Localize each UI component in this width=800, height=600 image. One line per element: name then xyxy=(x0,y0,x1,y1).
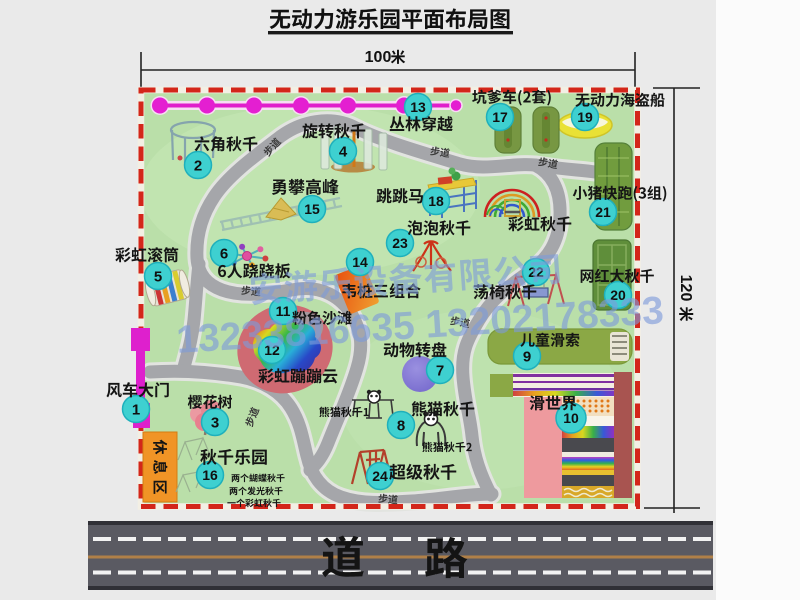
svg-text:3: 3 xyxy=(211,414,219,431)
svg-text:15: 15 xyxy=(304,201,320,217)
svg-text:10: 10 xyxy=(563,410,579,426)
svg-text:5: 5 xyxy=(154,268,162,285)
svg-text:8: 8 xyxy=(397,417,405,434)
svg-text:6: 6 xyxy=(220,245,228,262)
svg-text:2: 2 xyxy=(194,157,202,174)
svg-text:16: 16 xyxy=(202,467,218,483)
svg-text:19: 19 xyxy=(577,109,593,125)
svg-text:1: 1 xyxy=(132,401,140,418)
svg-text:7: 7 xyxy=(436,362,444,379)
svg-text:18: 18 xyxy=(428,193,444,209)
svg-text:17: 17 xyxy=(492,109,508,125)
svg-text:21: 21 xyxy=(595,204,611,220)
svg-text:24: 24 xyxy=(372,468,388,484)
svg-text:100: 100 xyxy=(365,49,392,66)
svg-text:13: 13 xyxy=(410,99,426,115)
svg-text:120: 120 xyxy=(677,275,694,302)
svg-text:9: 9 xyxy=(523,348,531,365)
svg-text:4: 4 xyxy=(339,143,348,160)
svg-text:23: 23 xyxy=(392,235,408,251)
